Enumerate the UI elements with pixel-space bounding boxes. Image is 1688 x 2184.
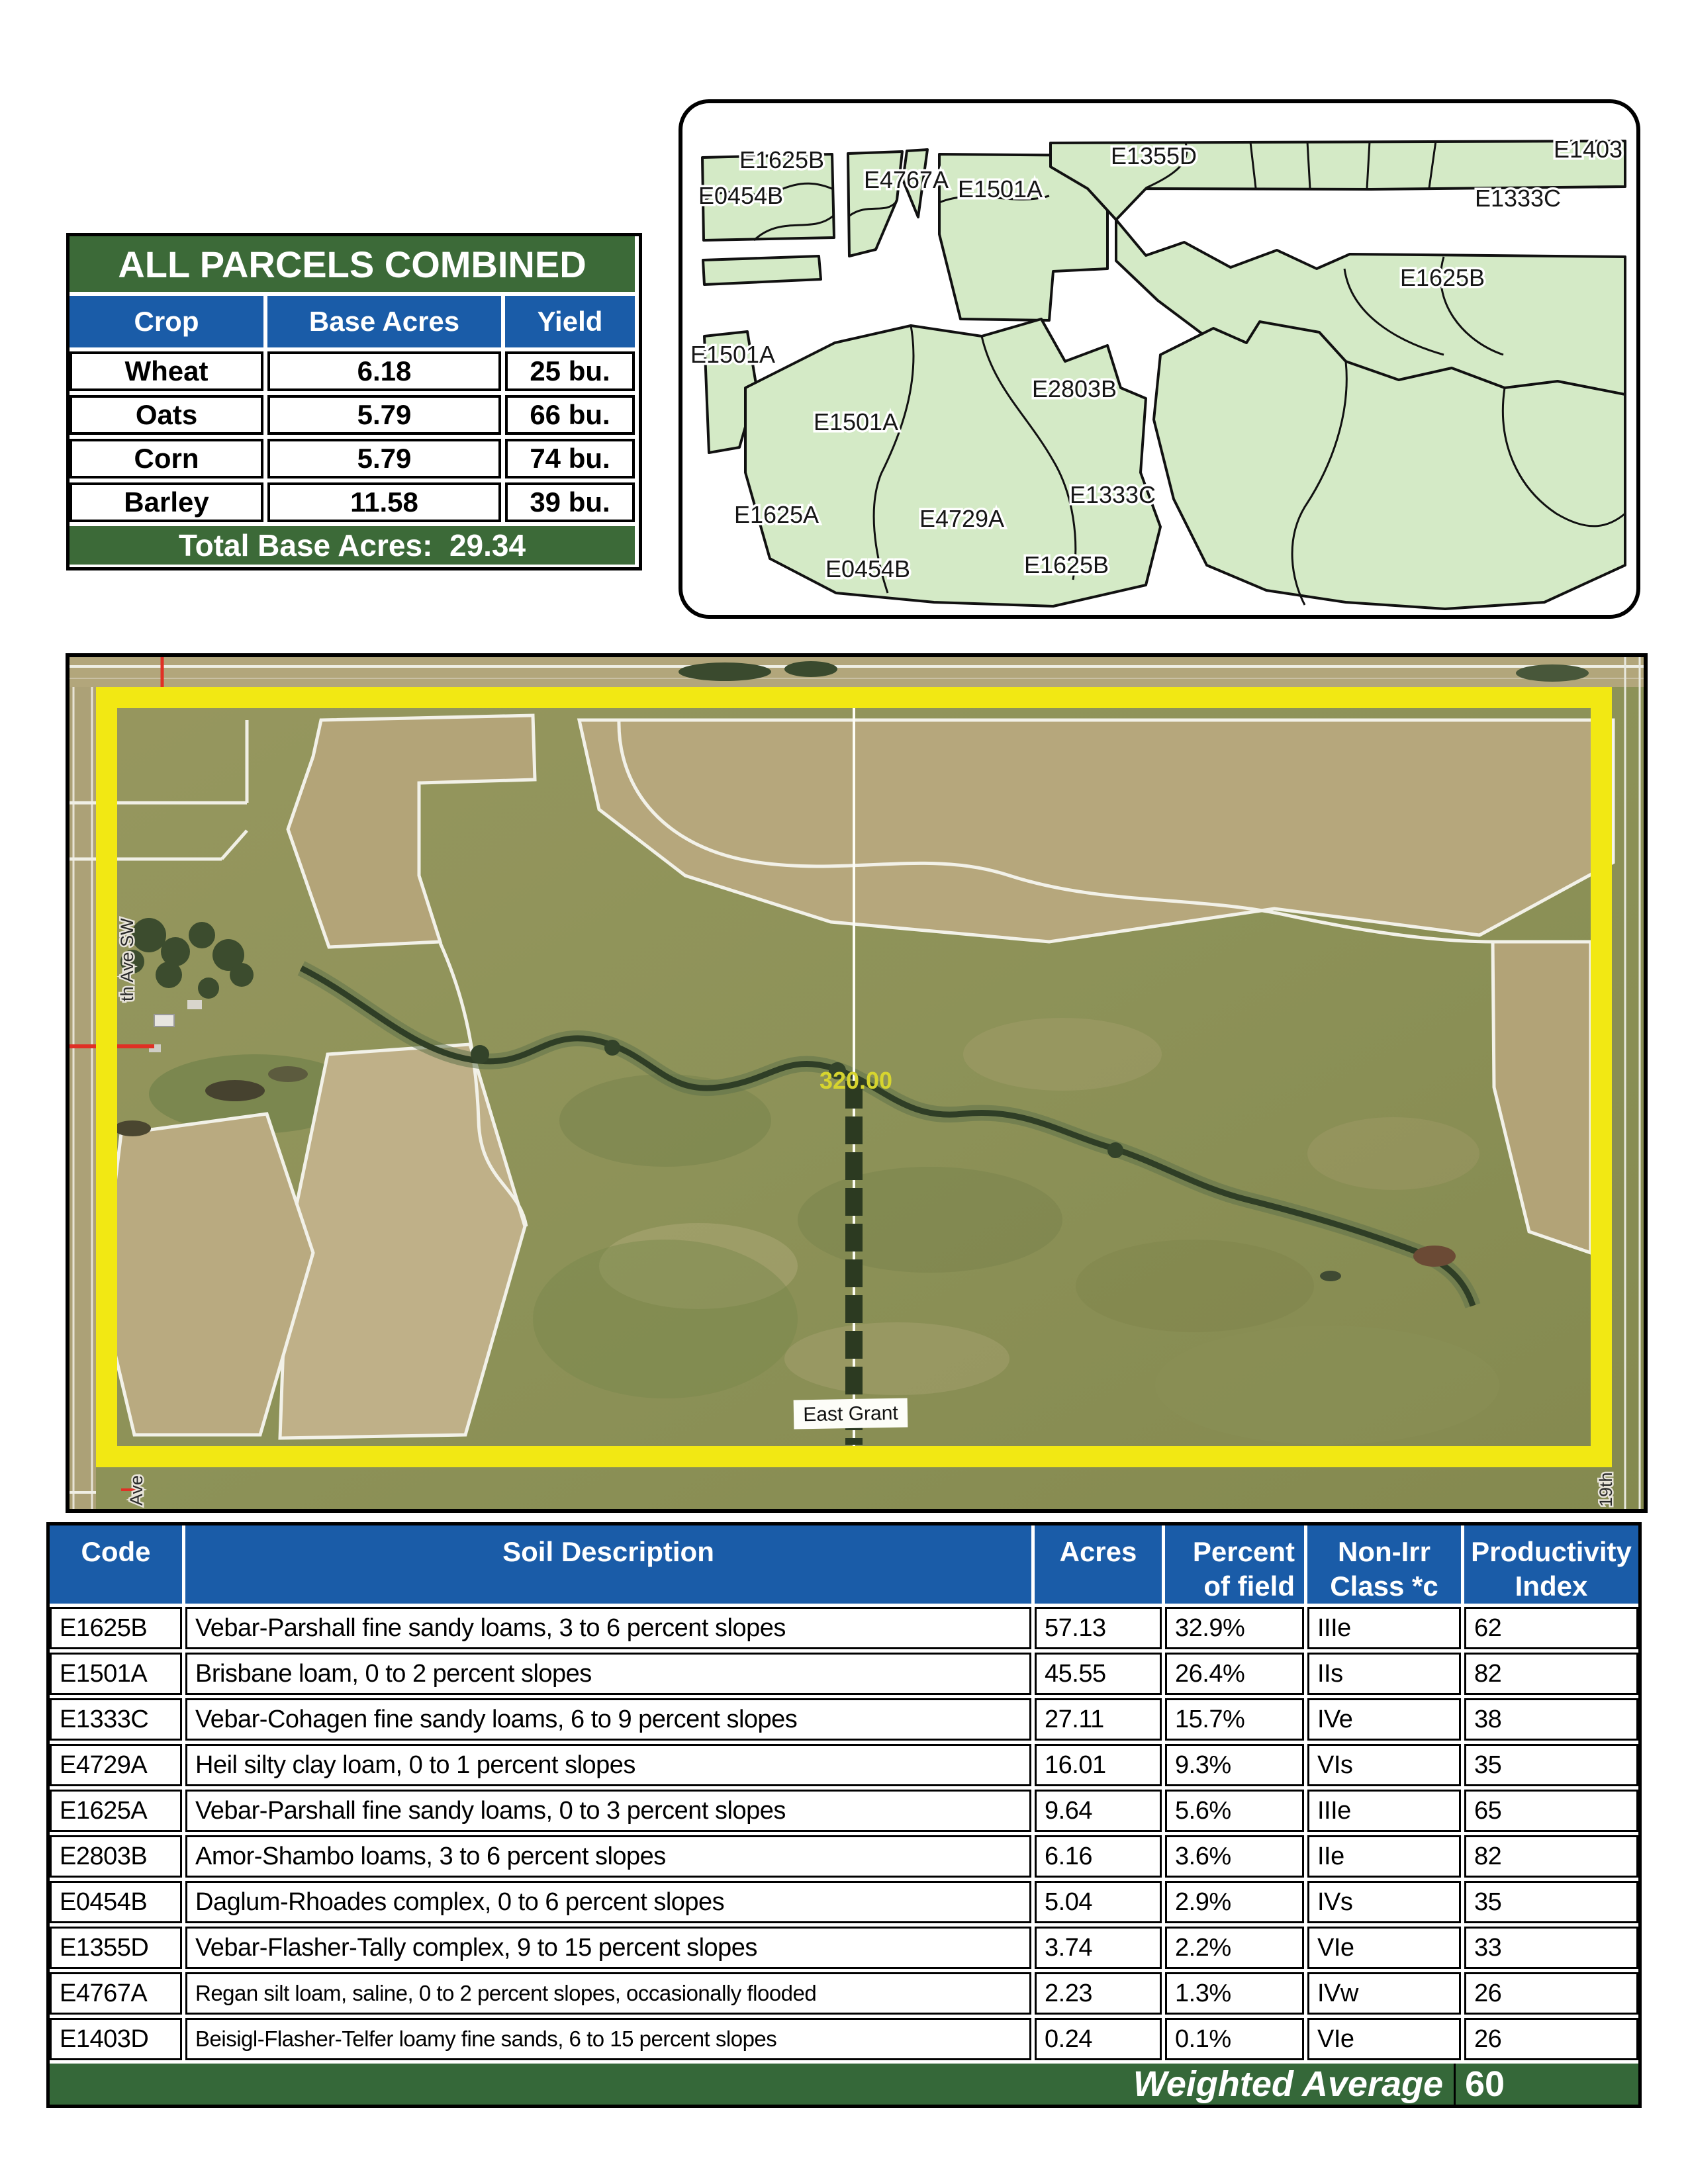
soil-acres: 57.13: [1035, 1607, 1162, 1649]
base-acres-cell: 6.18: [267, 351, 501, 391]
soil-code: E1501A: [50, 1653, 182, 1695]
weighted-average-value: 60: [1456, 2064, 1505, 2105]
soil-class: IIIe: [1307, 1790, 1461, 1832]
soil-pct: 2.9%: [1165, 1881, 1304, 1923]
soil-desc: Regan silt loam, saline, 0 to 2 percent …: [185, 1972, 1031, 2015]
soil-desc: Amor-Shambo loams, 3 to 6 percent slopes: [185, 1835, 1031, 1878]
soil-pct: 0.1%: [1165, 2018, 1304, 2060]
aerial-svg: 320.00 East Grant th Ave SW Ave 19th: [70, 657, 1644, 1509]
parcel-label: E1625B: [1024, 551, 1109, 578]
crop-col-header-crop: Crop: [70, 296, 263, 347]
soil-code: E1355D: [50, 1927, 182, 1969]
soil-code: E1625A: [50, 1790, 182, 1832]
soil-pi: 82: [1464, 1835, 1638, 1878]
soil-code: E2803B: [50, 1835, 182, 1878]
soil-acres: 9.64: [1035, 1790, 1162, 1832]
parcel-label: E1501A: [814, 408, 898, 435]
soil-class: IIe: [1307, 1835, 1461, 1878]
soil-desc: Beisigl-Flasher-Telfer loamy fine sands,…: [185, 2018, 1031, 2060]
crop-col-header-yield: Yield: [505, 296, 635, 347]
soil-code: E1403D: [50, 2018, 182, 2060]
parcel-label: E2803B: [1032, 375, 1117, 402]
soil-pi: 35: [1464, 1881, 1638, 1923]
soil-col-header-acres: Acres: [1035, 1525, 1162, 1604]
soil-col-header-description: Soil Description: [185, 1525, 1031, 1604]
soil-acres: 0.24: [1035, 2018, 1162, 2060]
soil-pct: 2.2%: [1165, 1927, 1304, 1969]
parcel-label: E4767A: [864, 166, 949, 193]
soil-class: IIIe: [1307, 1607, 1461, 1649]
total-base-acres: Total Base Acres: 29.34: [70, 526, 635, 565]
soil-acres: 27.11: [1035, 1698, 1162, 1741]
soil-pct: 26.4%: [1165, 1653, 1304, 1695]
soil-col-header-nonirr: Non-Irr Class *c: [1307, 1525, 1461, 1604]
soil-acres: 16.01: [1035, 1744, 1162, 1786]
crop-col-header-base-acres: Base Acres: [267, 296, 501, 347]
soil-acres: 2.23: [1035, 1972, 1162, 2015]
soil-pct: 3.6%: [1165, 1835, 1304, 1878]
township-label: East Grant: [803, 1402, 899, 1426]
soil-class: IVs: [1307, 1881, 1461, 1923]
soil-pct: 32.9%: [1165, 1607, 1304, 1649]
yield-cell: 74 bu.: [505, 439, 635, 478]
parcel-label: E1333C: [1475, 185, 1561, 212]
parcel-label: E1625B: [1400, 264, 1485, 291]
parcel-label: E1501A: [958, 175, 1043, 203]
soil-class: VIe: [1307, 1927, 1461, 1969]
base-acres-cell: 11.58: [267, 482, 501, 522]
soil-desc: Vebar-Parshall fine sandy loams, 3 to 6 …: [185, 1607, 1031, 1649]
parcel-label: E0454B: [698, 182, 783, 209]
soil-pi: 26: [1464, 1972, 1638, 2015]
parcel-label: E4729A: [919, 505, 1004, 532]
soil-pct: 5.6%: [1165, 1790, 1304, 1832]
soil-pi: 26: [1464, 2018, 1638, 2060]
soil-acres: 5.04: [1035, 1881, 1162, 1923]
soil-class: IVe: [1307, 1698, 1461, 1741]
soil-class: IIs: [1307, 1653, 1461, 1695]
parcel-label: E1333C: [1070, 481, 1156, 508]
base-acres-cell: 5.79: [267, 395, 501, 435]
soil-pct: 15.7%: [1165, 1698, 1304, 1741]
weighted-average-row: Weighted Average 60: [50, 2064, 1638, 2105]
soil-parcel-map-panel: E1625B E0454B E4767A E1501A E1355D E1403…: [679, 99, 1640, 619]
soil-desc: Brisbane loam, 0 to 2 percent slopes: [185, 1653, 1031, 1695]
soil-pi: 35: [1464, 1744, 1638, 1786]
parcel-label: E1625B: [739, 146, 824, 173]
soil-class: IVw: [1307, 1972, 1461, 2015]
soil-col-header-code: Code: [50, 1525, 182, 1604]
soil-code: E4767A: [50, 1972, 182, 2015]
soil-acres: 6.16: [1035, 1835, 1162, 1878]
aerial-photo: 320.00 East Grant th Ave SW Ave 19th: [66, 653, 1648, 1513]
soil-acres: 45.55: [1035, 1653, 1162, 1695]
soil-code: E1333C: [50, 1698, 182, 1741]
soil-pi: 82: [1464, 1653, 1638, 1695]
soil-pi: 65: [1464, 1790, 1638, 1832]
crop-cell: Oats: [70, 395, 263, 435]
soil-class: VIs: [1307, 1744, 1461, 1786]
parcel-label: E1501A: [690, 341, 775, 368]
crop-base-acres-table: ALL PARCELS COMBINED Crop Base Acres Yie…: [66, 233, 642, 570]
soil-pct: 9.3%: [1165, 1744, 1304, 1786]
soil-code: E4729A: [50, 1744, 182, 1786]
parcel-label: E1403: [1554, 136, 1622, 163]
soil-code: E0454B: [50, 1881, 182, 1923]
yield-cell: 25 bu.: [505, 351, 635, 391]
soil-desc: Vebar-Parshall fine sandy loams, 0 to 3 …: [185, 1790, 1031, 1832]
acreage-label: 320.00: [820, 1067, 892, 1094]
soil-description-table: Code Soil Description Acres Percent of f…: [46, 1522, 1642, 2108]
crop-cell: Wheat: [70, 351, 263, 391]
parcel-report-page: ALL PARCELS COMBINED Crop Base Acres Yie…: [0, 0, 1688, 2184]
crop-table-title: ALL PARCELS COMBINED: [70, 236, 635, 292]
soil-pct: 1.3%: [1165, 1972, 1304, 2015]
parcel-label: E1355D: [1111, 142, 1197, 169]
left-road-label: th Ave SW: [117, 918, 137, 1001]
yield-cell: 39 bu.: [505, 482, 635, 522]
soil-pi: 33: [1464, 1927, 1638, 1969]
soil-code: E1625B: [50, 1607, 182, 1649]
left-road-label-fragment: Ave: [126, 1475, 146, 1506]
soil-col-header-percent: Percent of field: [1165, 1525, 1304, 1604]
soil-pi: 62: [1464, 1607, 1638, 1649]
soil-pi: 38: [1464, 1698, 1638, 1741]
soil-desc: Vebar-Flasher-Tally complex, 9 to 15 per…: [185, 1927, 1031, 1969]
parcel-label: E0454B: [825, 555, 910, 582]
soil-desc: Vebar-Cohagen fine sandy loams, 6 to 9 p…: [185, 1698, 1031, 1741]
soil-desc: Daglum-Rhoades complex, 0 to 6 percent s…: [185, 1881, 1031, 1923]
weighted-average-label: Weighted Average: [50, 2064, 1454, 2105]
crop-cell: Barley: [70, 482, 263, 522]
base-acres-cell: 5.79: [267, 439, 501, 478]
soil-desc: Heil silty clay loam, 0 to 1 percent slo…: [185, 1744, 1031, 1786]
crop-cell: Corn: [70, 439, 263, 478]
soil-class: VIe: [1307, 2018, 1461, 2060]
yield-cell: 66 bu.: [505, 395, 635, 435]
right-road-label: 19th: [1596, 1472, 1616, 1507]
soil-map-svg: E1625B E0454B E4767A E1501A E1355D E1403…: [682, 103, 1636, 615]
soil-col-header-productivity: Productivity Index: [1464, 1525, 1638, 1604]
parcel-label: E1625A: [734, 501, 819, 528]
soil-acres: 3.74: [1035, 1927, 1162, 1969]
